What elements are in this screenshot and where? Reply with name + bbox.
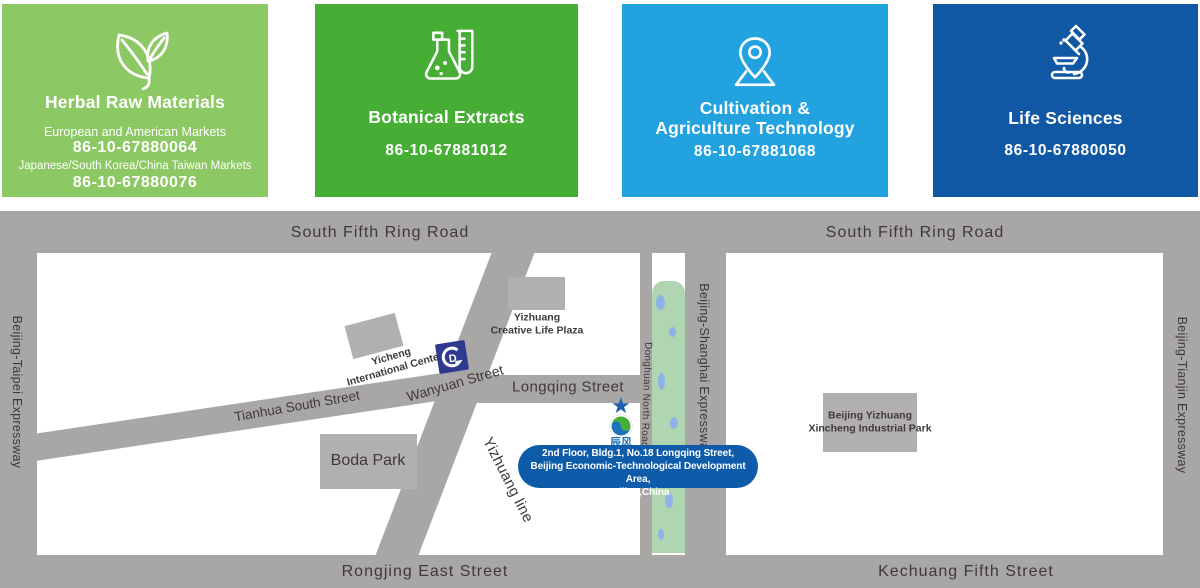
contact-location-page: Herbal Raw Materials European and Americ… (0, 0, 1200, 588)
card-title: Cultivation & Agriculture Technology (622, 99, 888, 138)
label-line: Xincheng Industrial Park (808, 422, 931, 435)
phone-number: 86-10-67880064 (2, 139, 268, 157)
market-label: European and American Markets (2, 125, 268, 139)
label-beijing-shanghai-expressway: Beijing-Shanghai Expressway (697, 283, 711, 456)
leaf-icon (98, 16, 172, 95)
location-map: South Fifth Ring Road South Fifth Ring R… (0, 211, 1200, 588)
label-south-fifth-ring-road-west: South Fifth Ring Road (291, 224, 469, 242)
card-title-line2: Agriculture Technology (655, 118, 855, 138)
label-line: Yizhuang (491, 312, 584, 325)
card-title: Life Sciences (933, 108, 1198, 129)
phone-number: 86-10-67881012 (315, 142, 578, 160)
card-botanical-extracts: Botanical Extracts 86-10-67881012 (315, 4, 578, 197)
card-title: Herbal Raw Materials (2, 92, 268, 113)
label-beijing-tianjin-expressway: Beijing-Tianjin Expressway (1175, 317, 1189, 474)
market-label: Japanese/South Korea/China Taiwan Market… (2, 160, 268, 172)
card-cultivation-agriculture: Cultivation & Agriculture Technology 86-… (622, 4, 888, 197)
map-pin-icon (721, 30, 789, 103)
address-line: Beijing Economic-Technological Developme… (518, 460, 758, 486)
microscope-icon (1030, 20, 1102, 97)
address-line: 2nd Floor, Bldg.1, No.18 Longqing Street… (518, 447, 758, 460)
label-beijing-taipei-expressway: Beijing-Taipei Expressway (10, 316, 24, 469)
canal-greenbelt (652, 281, 685, 553)
label-beijing-yizhuang-xincheng-industrial-park: Beijing Yizhuang Xincheng Industrial Par… (808, 410, 931, 435)
map-block-east (726, 253, 1163, 555)
card-herbal-raw-materials: Herbal Raw Materials European and Americ… (2, 4, 268, 197)
label-rongjing-east-street: Rongjing East Street (342, 563, 509, 581)
svg-text:D: D (448, 352, 458, 365)
phone-number: 86-10-67881068 (622, 143, 888, 161)
label-kechuang-fifth-street: Kechuang Fifth Street (878, 563, 1054, 581)
phone-number: 86-10-67880050 (933, 142, 1198, 160)
label-line: Beijing Yizhuang (808, 410, 931, 423)
label-longqing-street: Longqing Street (512, 379, 624, 396)
phone-number: 86-10-67880076 (2, 174, 268, 192)
label-yizhuang-creative-life-plaza: Yizhuang Creative Life Plaza (491, 312, 584, 337)
flask-icon (412, 26, 482, 101)
address-callout: 2nd Floor, Bldg.1, No.18 Longqing Street… (518, 445, 758, 488)
label-south-fifth-ring-road-east: South Fifth Ring Road (826, 224, 1004, 242)
metro-station-icon: D (435, 340, 469, 374)
address-line: Beijing,China (518, 486, 758, 499)
card-life-sciences: Life Sciences 86-10-67880050 (933, 4, 1198, 197)
label-line: Creative Life Plaza (491, 324, 584, 337)
card-title: Botanical Extracts (315, 107, 578, 128)
label-boda-park: Boda Park (331, 452, 406, 470)
card-title-line1: Cultivation & (700, 98, 811, 118)
building-yizhuang-creative-life-plaza (508, 277, 565, 310)
